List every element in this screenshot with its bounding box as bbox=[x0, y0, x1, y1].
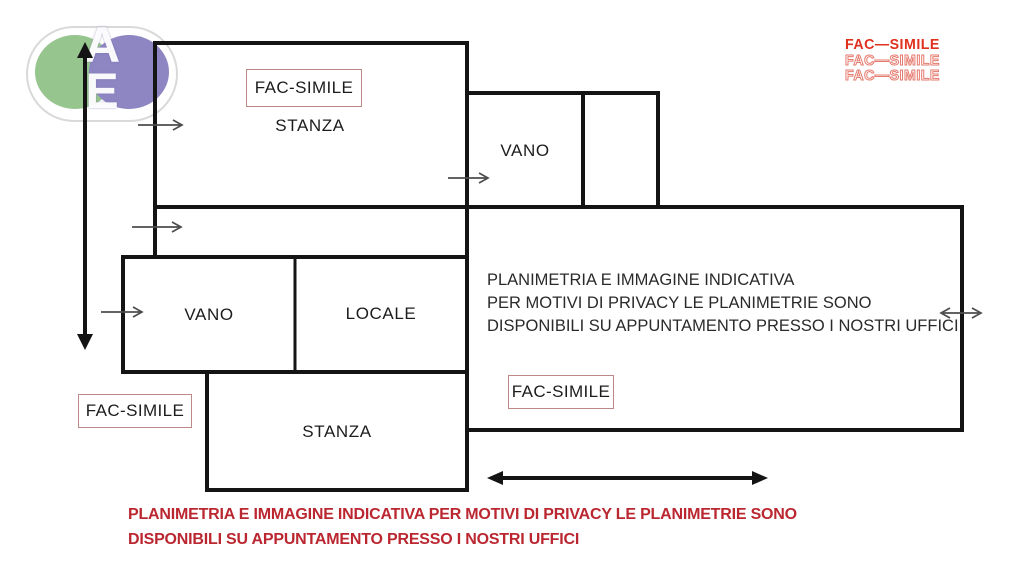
wall-small-room bbox=[583, 93, 658, 207]
wall-corridor bbox=[155, 207, 467, 257]
footer-notice-line2: DISPONIBILI SU APPUNTAMENTO PRESSO I NOS… bbox=[128, 527, 797, 552]
room-label-vano-top: VANO bbox=[500, 141, 549, 161]
room-label-stanza-top: STANZA bbox=[275, 116, 344, 136]
privacy-notice-line1: PLANIMETRIA E IMMAGINE INDICATIVA bbox=[487, 269, 959, 292]
fac-simile-box-top: FAC-SIMILE bbox=[246, 69, 362, 107]
fac-simile-box-center: FAC-SIMILE bbox=[508, 375, 614, 409]
floor-plan-page: A E bbox=[0, 0, 1024, 576]
horizontal-double-arrow-icon bbox=[487, 471, 768, 485]
watermark-line-outline2: FAC—SIMILE bbox=[845, 69, 940, 85]
vertical-double-arrow-icon bbox=[77, 42, 93, 350]
fac-simile-watermark: FAC—SIMILE FAC—SIMILE FAC—SIMILE bbox=[845, 38, 940, 85]
room-label-stanza-bottom: STANZA bbox=[302, 422, 371, 442]
privacy-notice: PLANIMETRIA E IMMAGINE INDICATIVA PER MO… bbox=[487, 269, 959, 338]
entry-arrow-stanza-top-icon bbox=[138, 120, 182, 130]
privacy-notice-line2: PER MOTIVI DI PRIVACY LE PLANIMETRIE SON… bbox=[487, 292, 959, 315]
watermark-line-solid: FAC—SIMILE bbox=[845, 38, 940, 54]
watermark-line-outline1: FAC—SIMILE bbox=[845, 54, 940, 70]
room-label-vano-left: VANO bbox=[184, 305, 233, 325]
room-label-locale: LOCALE bbox=[346, 304, 417, 324]
footer-notice-line1: PLANIMETRIA E IMMAGINE INDICATIVA PER MO… bbox=[128, 502, 797, 527]
fac-simile-box-bottom-left: FAC-SIMILE bbox=[78, 394, 192, 428]
footer-privacy-notice: PLANIMETRIA E IMMAGINE INDICATIVA PER MO… bbox=[128, 502, 797, 552]
privacy-notice-line3: DISPONIBILI SU APPUNTAMENTO PRESSO I NOS… bbox=[487, 315, 959, 338]
